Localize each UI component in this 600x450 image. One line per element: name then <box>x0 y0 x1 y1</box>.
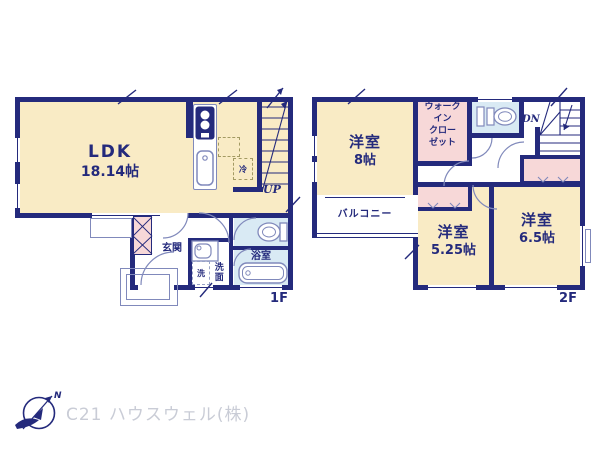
stairs-up-label: UP <box>263 183 281 196</box>
closet-bedroom-65 <box>520 155 585 185</box>
window-bedroom525-bottom <box>428 285 476 290</box>
wic-line-3: クロー <box>419 125 466 137</box>
stairs-down-label: DN <box>522 114 540 125</box>
window-ldk-left-1 <box>15 138 20 162</box>
balcony-railing <box>317 233 418 238</box>
kitchen-sink-icon <box>196 150 214 186</box>
compass-icon: N <box>14 388 64 436</box>
washroom-label: 洗面 <box>212 256 223 288</box>
bedroom525-size: 5.25帖 <box>418 243 489 259</box>
bathroom-label: 浴室 <box>236 251 286 263</box>
floorplan-canvas: 冷 洗 LDK 18.14帖 玄関 浴室 洗面 UP 1 <box>0 0 600 450</box>
window-bedroom8-balcony <box>325 195 405 200</box>
bedroom65-size: 6.5帖 <box>494 231 580 247</box>
bedroom65-label: 洋室 6.5帖 <box>494 211 580 247</box>
bedroom8-size: 8帖 <box>322 153 408 169</box>
wall-toilet-bath-divider <box>229 246 293 250</box>
entrance-label: 玄関 <box>148 243 196 255</box>
wic-line-1: ウォーク <box>419 101 466 113</box>
opening-ldk-hall <box>160 213 188 218</box>
compass-north-label: N <box>54 391 62 401</box>
stairs-up-1f <box>258 97 293 197</box>
floor2-label: 2F <box>555 291 581 307</box>
window-ldk-left-2 <box>15 184 20 208</box>
stove-icon <box>195 106 215 140</box>
toilet-icon-2f <box>476 103 518 133</box>
bedroom525-label: 洋室 5.25帖 <box>418 223 489 259</box>
bedroom525-name: 洋室 <box>418 223 489 241</box>
fridge-label: 冷 <box>239 164 247 175</box>
wic-line-4: ゼット <box>419 137 466 149</box>
window-bedroom8-left-1 <box>312 136 317 156</box>
bathtub-icon <box>238 262 288 284</box>
floor1-label: 1F <box>266 291 292 307</box>
stairs-down-2f <box>540 102 585 157</box>
window-bedroom8-left-2 <box>312 162 317 182</box>
fridge-space: 冷 <box>233 158 253 180</box>
ldk-size: 18.14帖 <box>55 164 165 181</box>
wic-label: ウォーク イン クロー ゼット <box>419 101 466 150</box>
bedroom8-name: 洋室 <box>322 133 408 151</box>
window-sill-bedroom65 <box>585 229 591 263</box>
balcony-label: バルコニー <box>312 209 418 221</box>
toilet-icon-1f <box>256 219 288 245</box>
company-name: C21 ハウスウェル(株) <box>66 400 250 425</box>
kitchen-cupboard-space <box>218 137 240 157</box>
porch-step-inner <box>126 274 170 300</box>
wic-line-2: イン <box>419 113 466 125</box>
ldk-name: LDK <box>55 142 165 162</box>
ldk-label: LDK 18.14帖 <box>55 142 165 181</box>
closet-bedroom-525 <box>418 187 472 211</box>
window-bath-bottom <box>240 285 282 290</box>
terrace-sill <box>90 218 132 238</box>
bedroom8-label: 洋室 8帖 <box>322 133 408 169</box>
washer-space: 洗 <box>192 261 210 285</box>
wall-kitchen-stub <box>186 97 193 138</box>
window-washroom-bottom <box>195 285 213 290</box>
window-toilet2f-top <box>478 97 512 102</box>
wall-wet-divider-v <box>229 213 233 290</box>
washer-label: 洗 <box>197 268 205 279</box>
window-bedroom65-bottom <box>505 285 557 290</box>
bedroom65-name: 洋室 <box>494 211 580 229</box>
